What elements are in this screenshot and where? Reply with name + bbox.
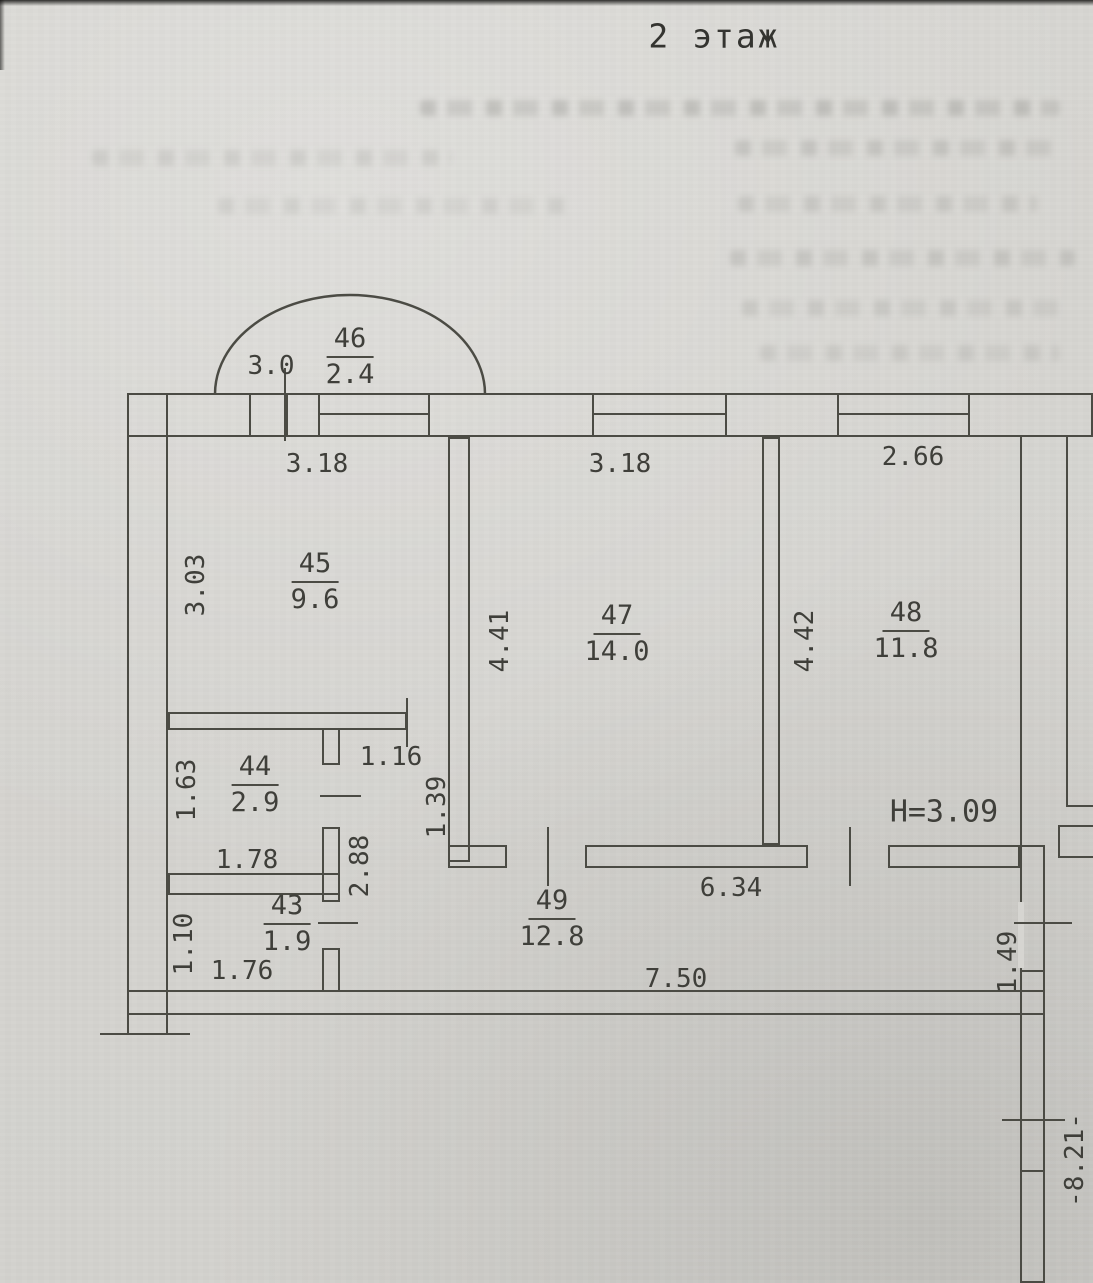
dim-room47-width: 3.18 bbox=[589, 449, 652, 479]
room-number-48: 48 bbox=[883, 598, 930, 632]
window-room47 bbox=[592, 393, 727, 437]
tick-door-room45 bbox=[406, 698, 408, 747]
room-number-49: 49 bbox=[529, 886, 576, 920]
neighbour-wall-line bbox=[1058, 856, 1093, 858]
bleedthrough-smudge bbox=[738, 196, 1038, 212]
room-label-49: 49 12.8 bbox=[519, 886, 584, 951]
room-label-43: 43 1.9 bbox=[263, 891, 312, 956]
balcony-door-jamb bbox=[286, 393, 288, 437]
bleedthrough-smudge bbox=[735, 140, 1065, 156]
wall-corridor-north-a bbox=[448, 845, 507, 868]
room-number-44: 44 bbox=[232, 752, 279, 786]
window-room48 bbox=[837, 393, 970, 437]
room-area-47: 14.0 bbox=[584, 635, 649, 667]
dim-room48-depth: 4.42 bbox=[790, 610, 820, 673]
wall-room45-south bbox=[168, 712, 407, 730]
dim-corridor-length: 6.34 bbox=[700, 873, 763, 903]
photo-edge-shadow bbox=[0, 0, 5, 70]
room-area-44: 2.9 bbox=[231, 786, 280, 818]
room-label-48: 48 11.8 bbox=[873, 598, 938, 663]
wall-room48-east-inner bbox=[1020, 437, 1022, 847]
dim-balcony-width: 3.0 bbox=[248, 351, 295, 381]
wall-corridor-north-c bbox=[888, 845, 1020, 868]
window-balcony-midline bbox=[318, 413, 430, 415]
door-jamb-line bbox=[1020, 970, 1045, 972]
tick-door-room48 bbox=[849, 827, 851, 886]
dim-right-opening: 1.49 bbox=[993, 931, 1023, 994]
photo-edge-shadow bbox=[0, 0, 1093, 6]
dim-room47-depth: 4.41 bbox=[485, 610, 515, 673]
dim-room43-depth: 1.10 bbox=[169, 913, 199, 976]
neighbour-wall-line bbox=[1058, 825, 1093, 827]
window-room48-midline bbox=[837, 413, 970, 415]
wall-47-48 bbox=[762, 437, 780, 845]
floor-plan-photo: 2 этаж 46 2.4 bbox=[0, 0, 1093, 1283]
room-number-43: 43 bbox=[264, 891, 311, 925]
wall-hall-west-c bbox=[322, 948, 340, 992]
dim-right-wall-run: -8.21- bbox=[1060, 1113, 1090, 1207]
dim-south-wall-length: 7.50 bbox=[645, 964, 708, 994]
tick-door-room43 bbox=[318, 922, 358, 924]
room-number-45: 45 bbox=[292, 549, 339, 583]
wall-cut-mark bbox=[100, 1033, 190, 1035]
dim-hall-wall: 1.39 bbox=[422, 776, 452, 839]
dim-room43-width: 1.76 bbox=[211, 956, 274, 986]
dim-hall-width: 1.16 bbox=[360, 742, 423, 772]
room-area-48: 11.8 bbox=[873, 632, 938, 664]
bleedthrough-smudge bbox=[742, 300, 1062, 316]
wall-connector-line bbox=[1020, 1170, 1045, 1172]
bleedthrough-smudge bbox=[730, 250, 1075, 266]
tick-east-wall bbox=[1002, 1119, 1065, 1121]
room-area-45: 9.6 bbox=[291, 583, 340, 615]
bleedthrough-smudge bbox=[420, 100, 1060, 116]
dim-room48-width: 2.66 bbox=[882, 442, 945, 472]
room-label-44: 44 2.9 bbox=[231, 752, 280, 817]
room-number-47: 47 bbox=[594, 601, 641, 635]
bleedthrough-smudge bbox=[218, 198, 568, 214]
balcony-door-jamb bbox=[249, 393, 251, 437]
wall-hall-west-a bbox=[322, 728, 340, 765]
window-room47-midline bbox=[592, 413, 727, 415]
wall-corridor-north-b bbox=[585, 845, 808, 868]
dim-room45-depth: 3.03 bbox=[181, 554, 211, 617]
tick-door-east bbox=[1014, 922, 1072, 924]
room-label-45: 45 9.6 bbox=[291, 549, 340, 614]
bleedthrough-smudge bbox=[760, 345, 1060, 361]
room-label-46: 46 2.4 bbox=[326, 324, 375, 389]
dim-hall-length: 2.88 bbox=[345, 835, 375, 898]
tick-door-room47 bbox=[547, 827, 549, 886]
dim-room44-width: 1.78 bbox=[216, 845, 279, 875]
ceiling-height-label: H=3.09 bbox=[890, 795, 998, 830]
room-area-46: 2.4 bbox=[326, 358, 375, 390]
room-number-46: 46 bbox=[327, 324, 374, 358]
wall-44-43 bbox=[168, 873, 340, 895]
room-label-47: 47 14.0 bbox=[584, 601, 649, 666]
room-area-43: 1.9 bbox=[263, 925, 312, 957]
page-title: 2 этаж bbox=[648, 17, 779, 56]
neighbour-wall-line bbox=[1058, 825, 1060, 858]
bleedthrough-smudge bbox=[92, 150, 452, 166]
window-balcony bbox=[318, 393, 430, 437]
room-area-49: 12.8 bbox=[519, 920, 584, 952]
neighbour-wall-line bbox=[1066, 805, 1093, 807]
wall-exterior-south bbox=[127, 990, 1045, 1015]
wall-room48-east-outer bbox=[1066, 437, 1068, 807]
dim-room45-width: 3.18 bbox=[286, 449, 349, 479]
tick-door-room44 bbox=[320, 795, 361, 797]
wall-exterior-west bbox=[127, 393, 168, 1035]
dim-room44-depth: 1.63 bbox=[172, 759, 202, 822]
